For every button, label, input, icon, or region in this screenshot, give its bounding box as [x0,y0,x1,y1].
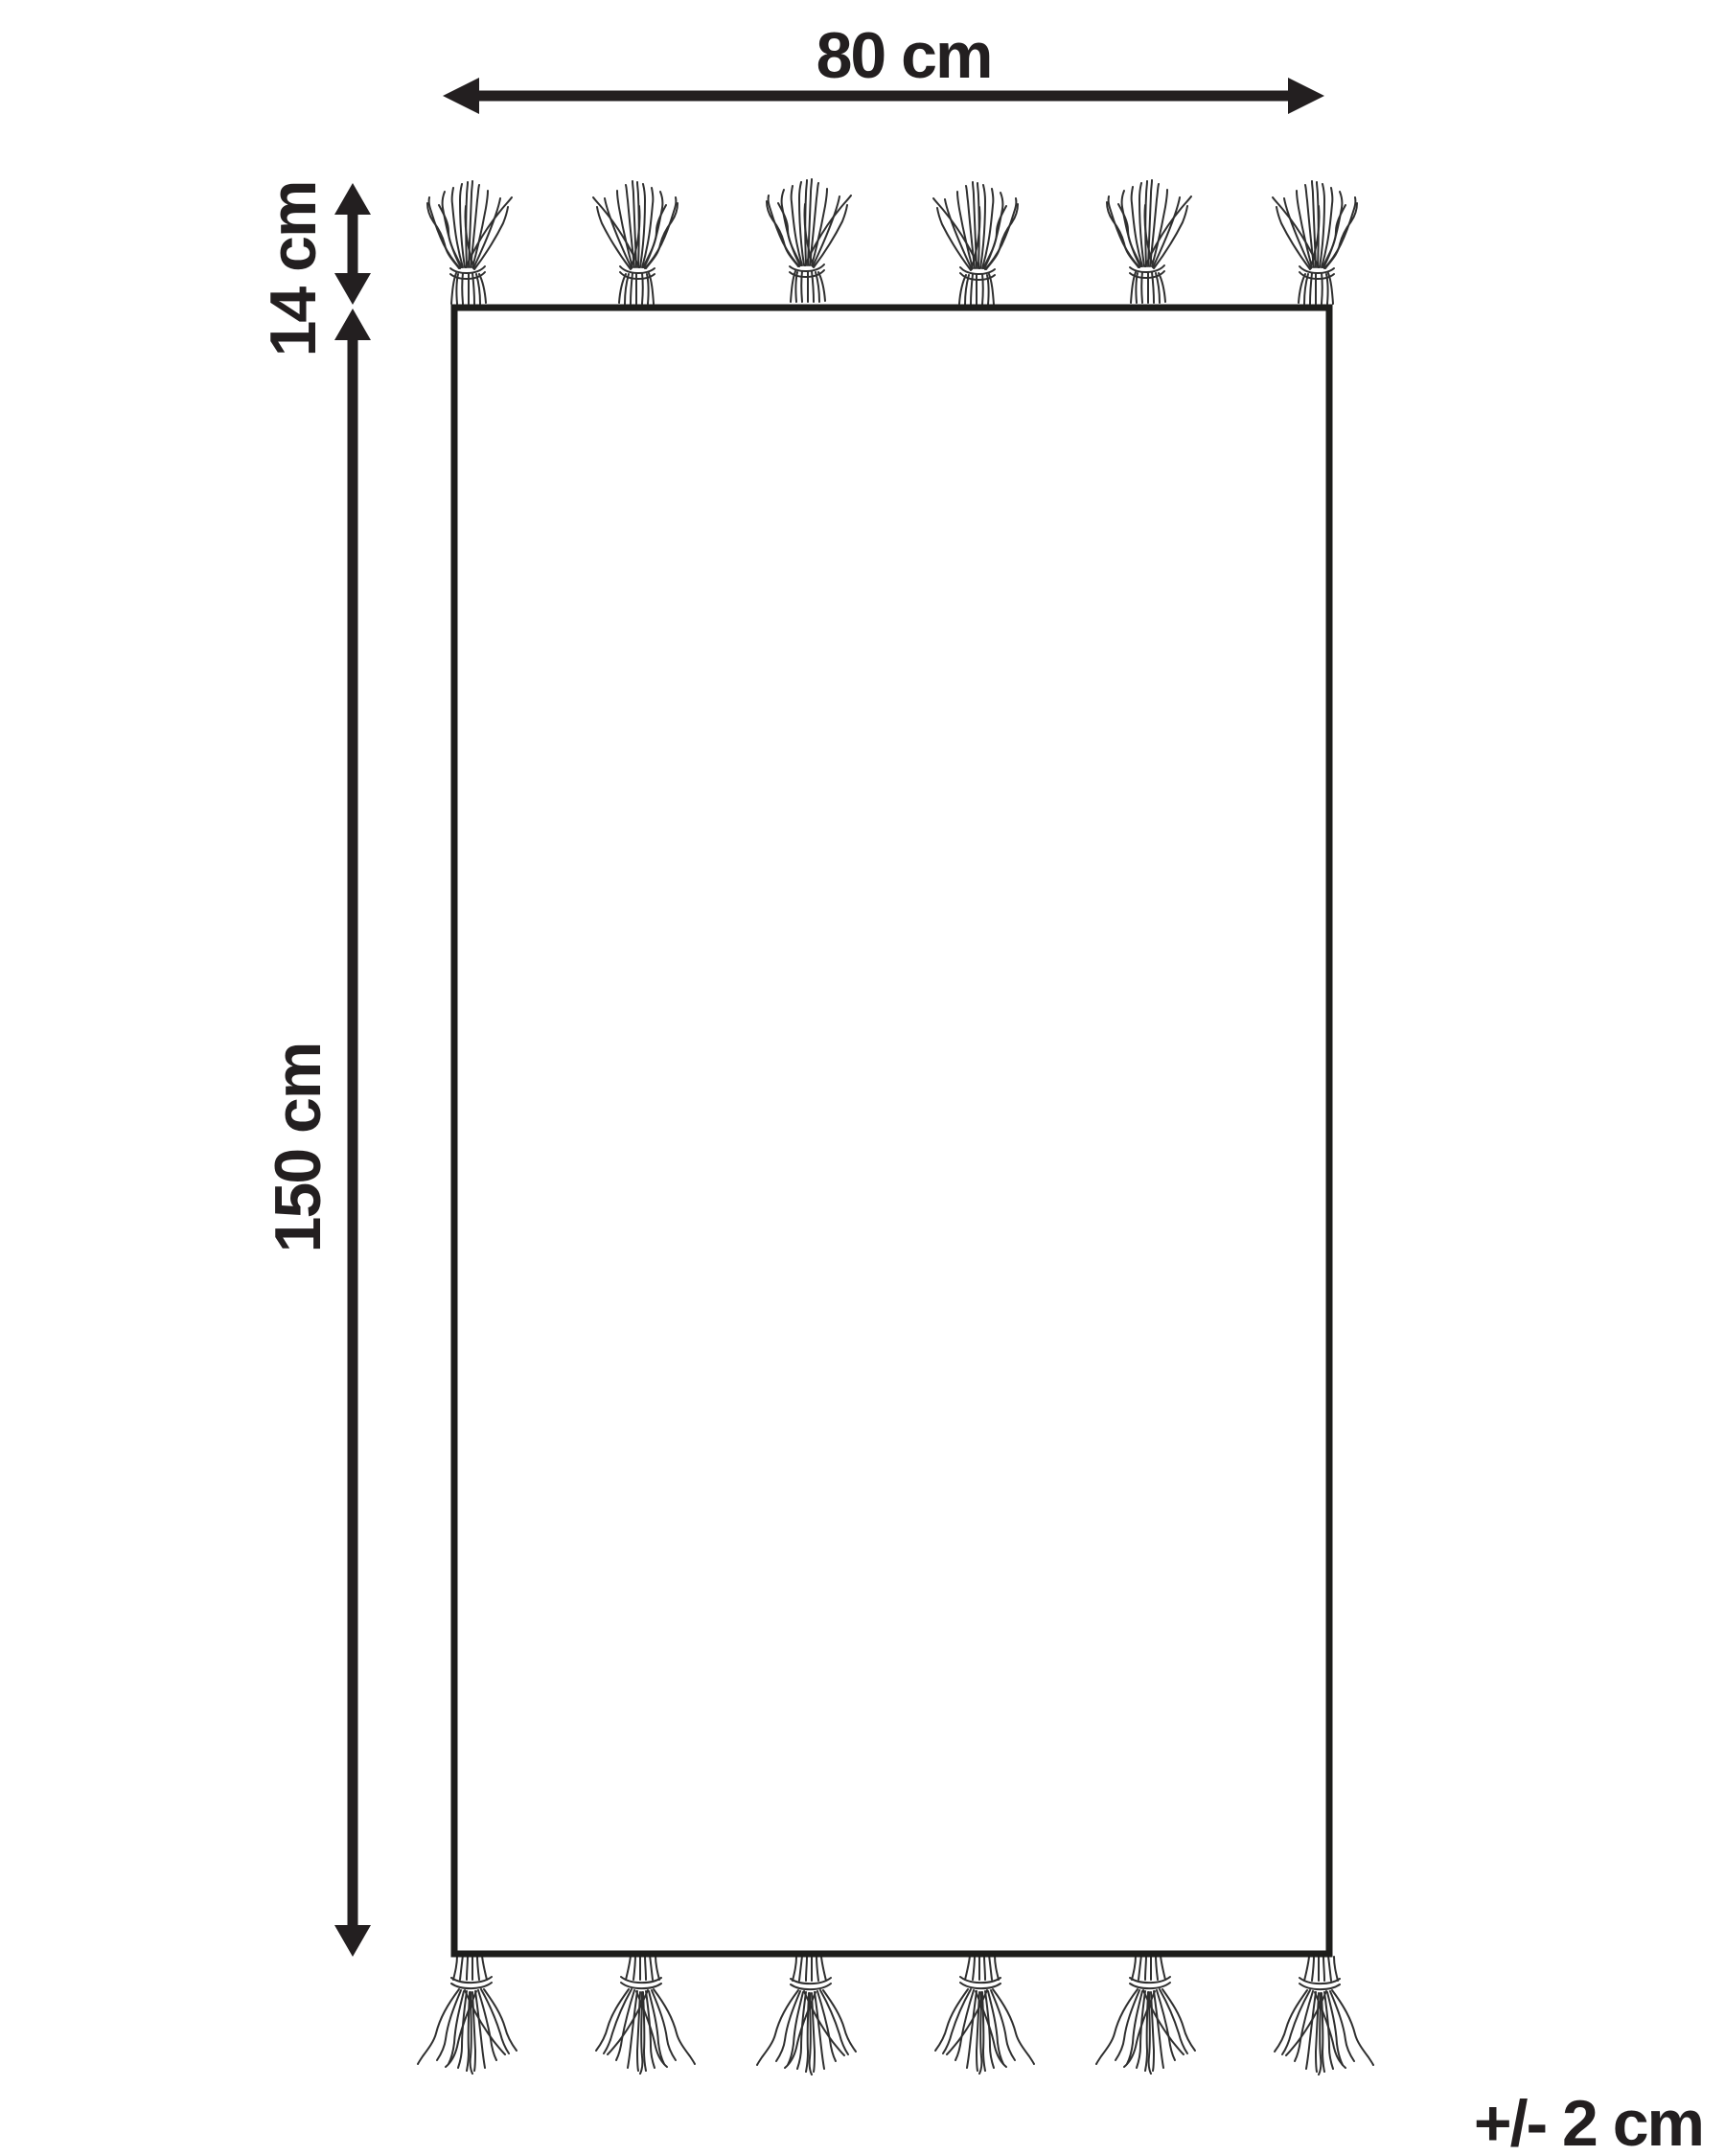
tassel-icon [933,182,1018,305]
rug-outline [454,308,1329,1954]
fringe-dimension-label: 14 cm [261,182,326,357]
tassel-icon [1107,180,1191,303]
tolerance-label: +/- 2 cm [1474,2091,1703,2156]
tassel-icon [427,181,512,304]
width-dimension-label: 80 cm [816,23,992,88]
rug-dimension-diagram: 80 cm 14 cm 150 cm +/- 2 cm [0,0,1725,2156]
top-fringe [427,179,1357,305]
tassel-icon [593,181,678,304]
tassel-icon [935,1955,1034,2074]
tassel-icon [767,179,851,302]
tassel-icon [1275,1956,1373,2075]
tassel-icon [1096,1955,1195,2074]
tassel-icon [418,1955,517,2074]
bottom-fringe [418,1955,1373,2075]
tassel-icon [757,1956,856,2075]
double-arrow-vertical-icon [334,309,371,1957]
tassel-icon [1273,181,1357,304]
tassel-icon [596,1955,695,2074]
length-dimension-label: 150 cm [265,1044,331,1253]
double-arrow-vertical-icon [334,183,371,305]
